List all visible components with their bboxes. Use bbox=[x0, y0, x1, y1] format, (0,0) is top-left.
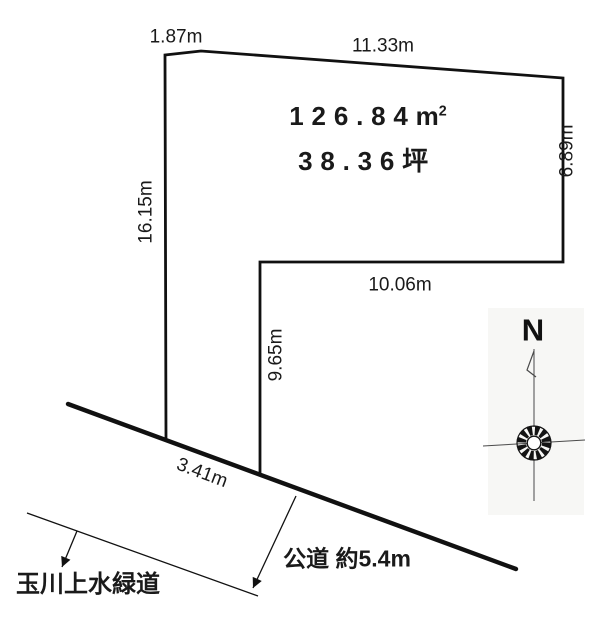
dim-right: 6.89m bbox=[558, 125, 577, 178]
greenway-leader-arrow bbox=[62, 531, 77, 567]
dim-step-side: 9.65m bbox=[267, 329, 286, 382]
area-sqm-unit-sup: 2 bbox=[439, 103, 447, 119]
area-square-meters: 126.84m2 bbox=[289, 103, 446, 129]
land-plot-diagram: 1.87m 11.33m 6.89m 16.15m 10.06m 9.65m 3… bbox=[0, 0, 610, 619]
road-leader-arrow bbox=[253, 496, 296, 588]
area-sqm-unit: m bbox=[416, 101, 439, 131]
compass-north-label: N bbox=[522, 315, 544, 346]
area-sqm-value: 126.84 bbox=[289, 101, 415, 131]
dim-top: 11.33m bbox=[352, 37, 414, 56]
road-line bbox=[68, 404, 516, 569]
dim-top-left: 1.87m bbox=[150, 28, 203, 47]
road-label: 公道 約5.4m bbox=[283, 548, 411, 571]
compass-inner-circle bbox=[527, 436, 541, 450]
area-tsubo: 38.36坪 bbox=[298, 148, 436, 174]
dim-left: 16.15m bbox=[137, 180, 156, 243]
dim-step-bottom: 10.06m bbox=[368, 276, 431, 295]
greenway-label: 玉川上水緑道 bbox=[16, 573, 160, 597]
diagram-canvas bbox=[0, 0, 610, 619]
